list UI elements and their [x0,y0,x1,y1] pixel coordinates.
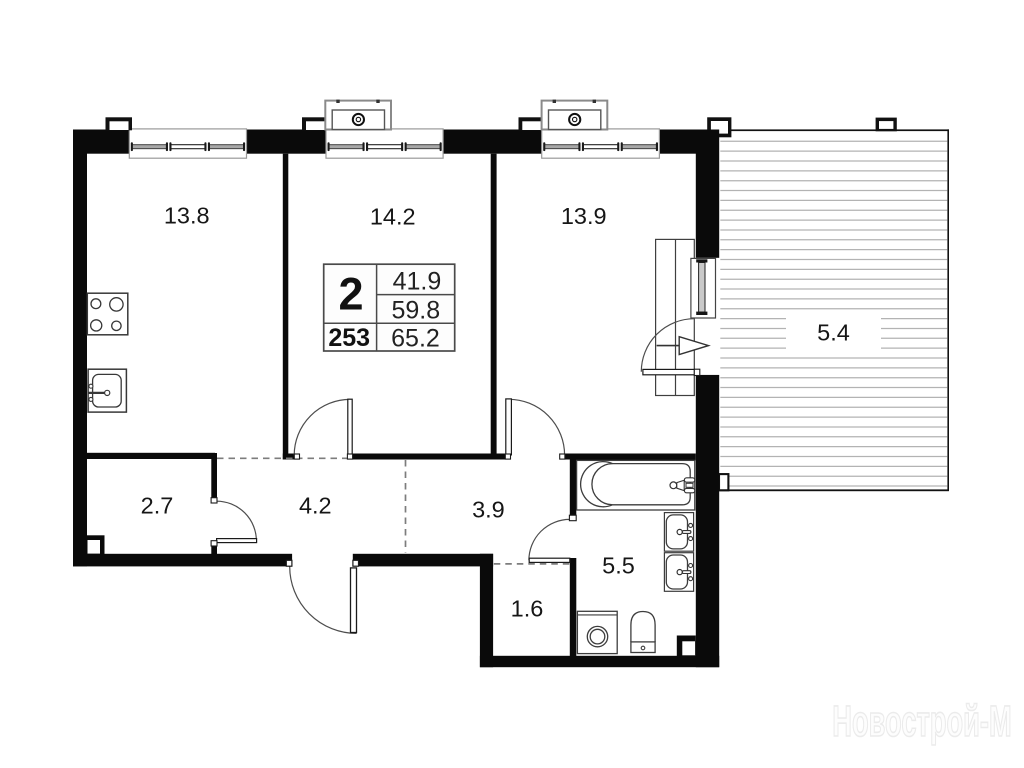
svg-text:14.2: 14.2 [370,204,416,230]
svg-text:41.9: 41.9 [393,268,442,296]
svg-text:253: 253 [328,324,370,352]
svg-text:13.8: 13.8 [164,203,210,229]
svg-text:3.9: 3.9 [472,496,505,522]
svg-text:5.4: 5.4 [817,320,850,346]
svg-text:1.6: 1.6 [511,596,544,622]
svg-text:4.2: 4.2 [299,492,332,518]
svg-text:Новострой-М: Новострой-М [832,696,1011,745]
svg-text:2: 2 [338,269,363,320]
svg-text:2.7: 2.7 [141,492,174,518]
svg-text:59.8: 59.8 [391,296,440,324]
svg-text:13.9: 13.9 [561,203,607,229]
svg-text:5.5: 5.5 [602,553,635,579]
svg-text:65.2: 65.2 [391,325,440,353]
